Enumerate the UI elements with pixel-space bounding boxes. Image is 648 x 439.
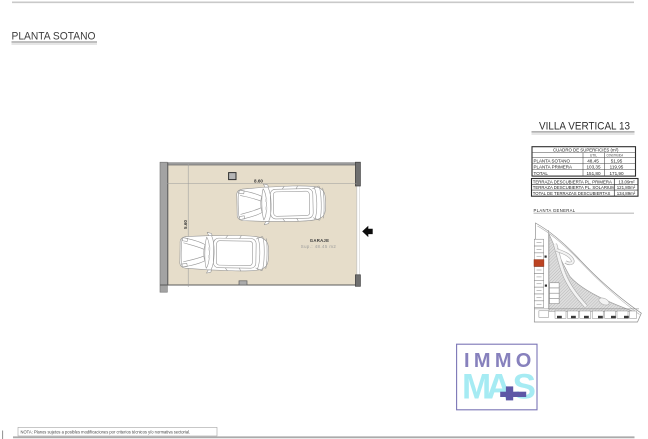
svg-text:51,95: 51,95 (611, 159, 623, 164)
svg-text:8.60: 8.60 (254, 179, 263, 184)
svg-text:13,09m²: 13,09m² (618, 179, 635, 184)
svg-text:GARAJE: GARAJE (310, 238, 329, 243)
svg-text:PLANTA SOTANO: PLANTA SOTANO (12, 31, 96, 43)
svg-text:PLANTA SOTANO: PLANTA SOTANO (534, 159, 571, 164)
svg-text:PLANTA GENERAL: PLANTA GENERAL (534, 208, 576, 213)
svg-text:S: S (513, 368, 536, 407)
svg-text:VILLA VERTICAL 13: VILLA VERTICAL 13 (539, 120, 630, 132)
svg-text:134,89m²: 134,89m² (617, 191, 636, 196)
svg-text:TOTAL: TOTAL (534, 171, 549, 176)
svg-text:CONSTRUIDA: CONSTRUIDA (607, 154, 624, 158)
svg-text:103,35: 103,35 (586, 165, 600, 170)
svg-text:UTIL: UTIL (590, 154, 597, 158)
svg-text:CUADRO DE SUPERFICIES (m²): CUADRO DE SUPERFICIES (m²) (553, 148, 619, 153)
svg-text:TERRAZA DESCUBIERTA PL. SOLARI: TERRAZA DESCUBIERTA PL. SOLARIUM (533, 185, 615, 190)
svg-text:5.60: 5.60 (183, 220, 188, 229)
svg-text:TERRAZA DESCUBIERTA PL. PRIMER: TERRAZA DESCUBIERTA PL. PRIMERA (533, 179, 612, 184)
svg-text:48,45: 48,45 (587, 159, 599, 164)
svg-text:PLANTA PRIMERA: PLANTA PRIMERA (534, 165, 573, 170)
svg-text:TOTAL DE TERRAZAS DESCUBIERTAS: TOTAL DE TERRAZAS DESCUBIERTAS (533, 191, 611, 196)
svg-text:Sup.: 48.45 m2: Sup.: 48.45 m2 (301, 244, 337, 249)
svg-text:119,95: 119,95 (610, 165, 624, 170)
svg-text:171,90: 171,90 (609, 171, 623, 176)
svg-text:151,80: 151,80 (586, 171, 600, 176)
svg-text:121,80m²: 121,80m² (617, 185, 636, 190)
svg-text:NOTA: Planos sujetos a posible: NOTA: Planos sujetos a posibles modifica… (21, 429, 191, 434)
